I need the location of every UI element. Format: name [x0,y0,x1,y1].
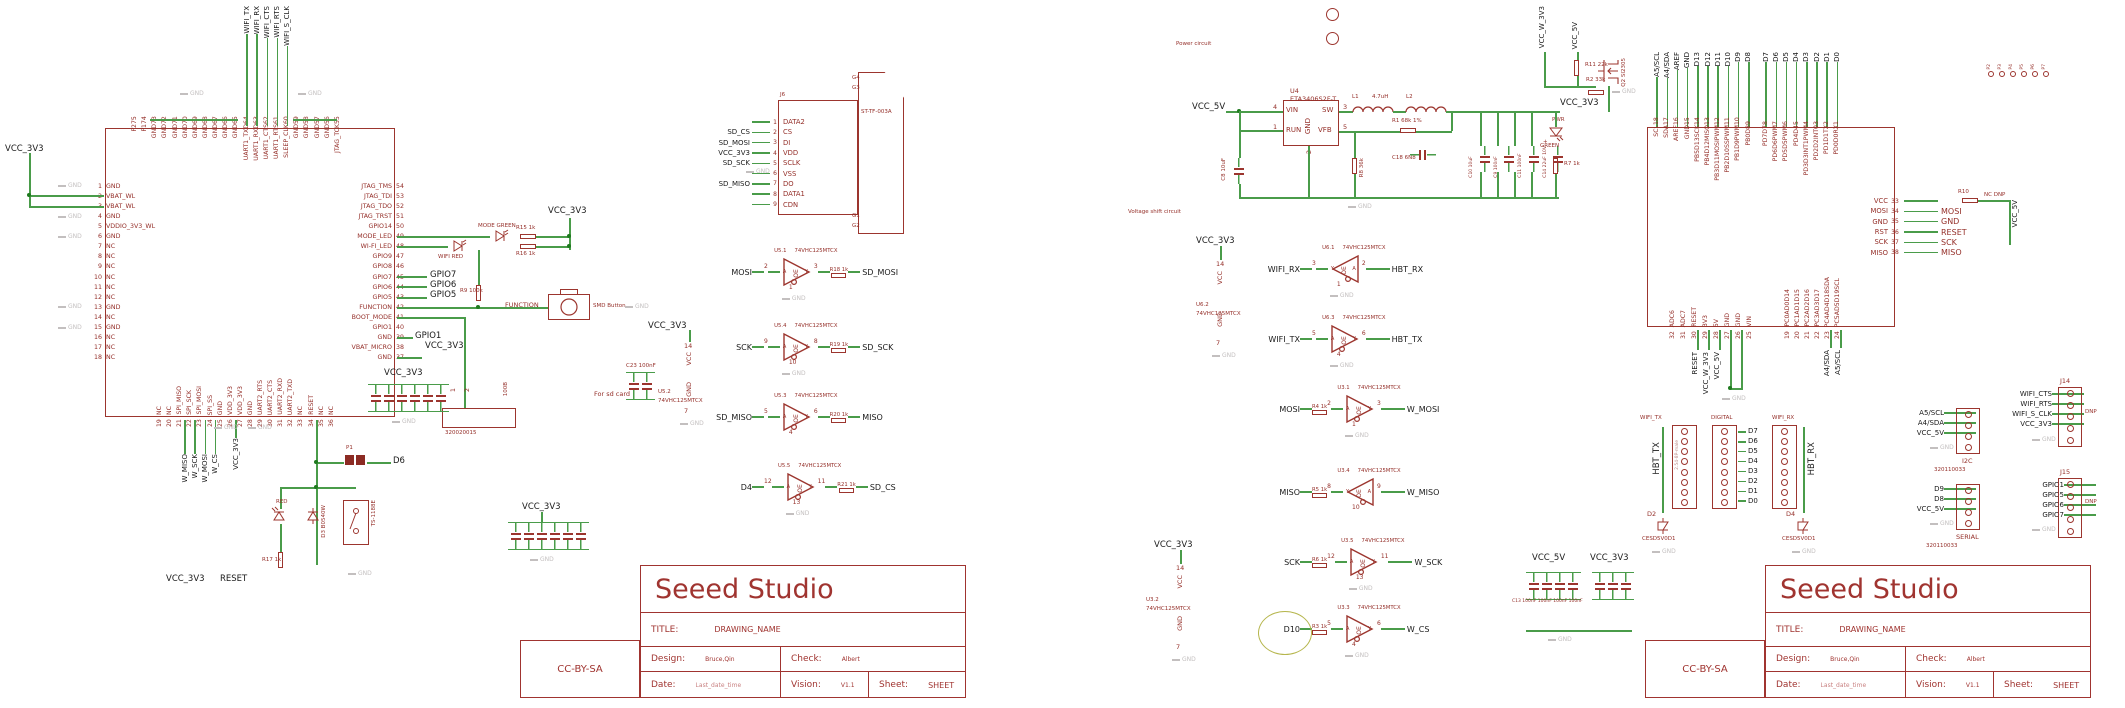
pin-number: 9 [1377,483,1381,490]
pin-run: RUN [1286,127,1301,134]
net-label: SD_MISO [698,180,750,188]
date-value: Last_date_time [1821,682,1867,689]
mount-hole: P5 [2018,64,2029,77]
sd-shield-top: G4G3 [852,76,860,96]
net-label-column: W_CS [210,420,220,500]
ic-pin: 13GND [86,302,155,312]
gnd-symbol: GND [782,370,806,377]
diode-d3-label: D3 B0540W [322,505,328,538]
oe-label: OE [796,484,803,493]
wire [1741,330,1743,390]
net-label: SCK [1938,238,1957,247]
pin-number: 5 [1327,620,1331,627]
ic-pin: 38VBAT_MICRO [300,343,412,353]
gnd-symbol: GND [1652,548,1676,555]
r10-note: NC DNP [1984,193,2005,199]
a-label: A [783,414,786,420]
jumper-pad [356,455,365,465]
ic-pin: GND28 [246,355,256,427]
wire [1738,500,1746,502]
net-label: VCC_3V3 [698,149,750,157]
bank-cap-values: C13 100nF 100nF 100nF 100nF [1512,600,1583,605]
net-label-out: SD_CS [870,483,896,492]
pin-number: 5 [764,408,768,415]
gnd-symbol: GND [214,424,238,431]
ic-pin: 51JTAG_TRST [300,211,412,221]
net-label: D13 [1694,52,1701,66]
resistor-body [520,244,536,249]
wire [1378,338,1390,340]
net-label-column: WIFI_TX [242,6,252,126]
net-label-out: HBT_RX [1392,265,1423,274]
gnd-symbol: GND [625,303,649,310]
hole-label: P4 [2010,64,2015,70]
wire [752,271,764,273]
socket-pin-row: RST36RESET [1826,227,1967,237]
net-label-in: MOSI [1246,405,1300,414]
wire [1662,427,1664,513]
header-wifi-rx [1772,425,1797,509]
net-label: D1 [1746,488,1758,495]
net-row: GPIO6 [2008,500,2096,510]
wire [1220,246,1222,260]
buffer-caption: U3.374VHC125MTCX [1309,605,1429,611]
buffer-gate: SD_MISO 5 OE A Y 4 GND U5.374VHC125MTCX … [698,400,883,434]
wire [818,416,830,418]
net-label-reset: RESET [220,575,247,584]
wire [1738,461,1746,463]
smd-button-label: SMD Button [593,304,626,310]
pin-number: 6 [814,408,818,415]
buffer-caption: U3.474VHC125MTCX [1309,468,1429,474]
mount-hole [1326,32,1339,45]
capacitor [511,523,521,549]
check-value: Albert [842,656,860,663]
ic-pin: 41BOOT_MODE [300,312,412,322]
pin-name-gnd: GND [686,382,693,397]
ic-pin: 39GND [300,333,412,343]
y-label: Y [805,414,808,420]
net-label-hbt-rx: HBT_RX [1808,442,1817,475]
a-label: A [783,269,786,275]
serial-label: SERIAL [1956,534,1979,541]
buffer-gate: D4 12 OE A Y 13 GND U5.574VHC125MTCX 11 … [698,470,896,504]
wire [1381,408,1393,410]
a-label: A [783,344,786,350]
net-label-in: D10 [1246,625,1300,634]
wire [1697,330,1699,350]
wire [1300,561,1312,563]
pin-number: 14 [1216,261,1224,268]
pin-number: 9 [770,201,780,208]
oe-label: OE [1360,559,1367,568]
diode-d4-ref: D4 [1786,511,1795,518]
net-label-reset: RESET [1692,352,1699,374]
net-label-vcc3v3: VCC_3V3 [425,342,464,351]
ic-pin: 8PD7D7 [1761,113,1771,176]
ic-pin: 9NC [86,262,155,272]
ic-pin: 3PD2D2INT0 [1812,113,1822,176]
wire [1978,200,2010,202]
wire [1738,491,1746,493]
net-label-vcc3v3: VCC_3V3 [384,369,423,378]
wire [1331,408,1343,410]
led-icon [450,240,466,252]
pin-number: 1 [770,119,780,126]
wire [1239,111,1241,158]
pin-number: 12 [764,478,772,485]
sd-part-label: ST-TF-003A [861,110,892,116]
pin-gnd: GND [1305,118,1312,134]
wire [848,416,860,418]
net-row: D1 [1738,486,1758,496]
design-label: Design: [651,654,685,664]
gnd-symbol: GND [1212,352,1236,359]
mount-hole: P7 [2040,64,2051,77]
a-label: A [1352,266,1355,272]
pin-name-vcc: VCC [1177,575,1184,589]
connector-part: 320020015 [445,431,477,437]
net-label: W_MOSI [202,454,209,482]
dnp-flag: DNP [2085,410,2097,416]
company-row: Seeed Studio [1766,566,2090,613]
pin-number: 1 [450,388,457,392]
capacitor [1480,146,1490,172]
wire [256,34,258,126]
ic-pin: SPI_MOSI23 [195,355,205,427]
socket-pin-row: GND35GND [1826,217,1967,227]
buffer-triangle: OE A Y 4 GND U6.374VHC125MTCX [1328,322,1362,356]
title-block: Seeed Studio TITLE:DRAWING_NAME Design:B… [1765,565,2091,698]
socket-bottom-pins-a: ADC632ADC731RESET303V3295V28GND27GND26VI… [1668,252,1756,339]
gnd-symbol: GND [1548,636,1572,643]
resistor-body [520,234,536,239]
net-label-column: WIFI_CTS [262,6,272,126]
gnd-symbol: GND [1612,88,1636,95]
connector-320020015 [442,408,516,428]
net-label: D2 [1746,478,1758,485]
net-label-in: MISO [1246,488,1300,497]
wire [1904,252,1938,254]
j14-connector [2058,387,2082,447]
pin-number: 5 [1312,330,1316,337]
wire [1738,471,1746,473]
wire [1830,330,1832,348]
wire [1300,491,1312,493]
net-label: D2 [1814,52,1821,62]
sd-pin-row: 9CDN [698,199,805,209]
ic-part-label: 74VHC125MTCX [658,399,703,405]
net-label-out: W_CS [1407,625,1430,634]
sheet-label: Sheet: [2004,680,2033,690]
gnd-symbol: GND [1172,656,1196,663]
oe-label: OE [1356,489,1363,498]
wire [1738,481,1746,483]
wire [287,46,289,126]
buffer-triangle: OE A Y 10 GND U5.474VHC125MTCX [780,330,814,364]
net-label-out: SD_MOSI [862,268,898,277]
dnp-flag: DNP [2085,500,2097,506]
pin-name: SCK [1826,238,1888,246]
wire [825,486,837,488]
y-label: Y [1353,336,1356,342]
ic-pin: VDD_3V327 [236,355,246,427]
series-resistor: R19 1k [830,342,849,353]
junction [314,485,318,489]
socket-pin-row: SCK37SCK [1826,237,1967,247]
capacitor-bank [1592,572,1634,600]
cap-c11-label: C11 100nF [1519,146,1524,178]
net-label: D9 [1888,485,1944,493]
wire [1331,628,1343,630]
net-label-vcc-w-3v3: VCC_W_3V3 [1703,352,1710,394]
oe-pin-number: 1 [1337,281,1341,288]
wire [772,486,784,488]
wire [397,246,448,248]
capacitor [563,523,573,549]
digital-net-list: D7D6D5D4D3D2D1D0 [1738,427,1758,506]
ic-pin: VDD_3V326 [226,355,236,427]
pin-number: 8 [814,338,818,345]
diode-part-label: CESD5V0D1 [1782,537,1816,543]
mount-hole: P6 [2029,64,2040,77]
ic-pin: 5VDDIO_3V3_WL [86,221,155,231]
ic-pin: 10NC [86,272,155,282]
net-label-column: W_SCK [190,420,200,500]
net-label: GPIO1 [2008,481,2064,489]
pin-number: 5 [1343,124,1347,131]
date-row: Date:Last_date_time Vision:V1.1 Sheet:SH… [641,672,965,698]
ic-part-label: 74VHC125MTCX [1146,607,1191,613]
net-label: WIFI_S_CLK [284,6,291,46]
hole-label: P3 [1999,64,2004,70]
capacitor [642,373,652,399]
ic-pin: PC2AD2D1621 [1803,252,1813,339]
cap-c14-label: C14 22uF 10V [1544,146,1549,178]
net-label: WIFI_RTS [274,6,281,38]
net-label: WIFI_RTS [1996,400,2052,408]
socket-top-pins-b: 8PD7D77PD6D6PWM6PD5D5PWM5PD4D44PD3D3INT1… [1761,113,1843,176]
net-label: GND [1938,217,1959,226]
wire [1904,211,1938,213]
ic-bottom-net-list: W_MISOW_SCKW_MOSIW_CS [180,420,220,500]
date-row: Date:Last_date_time Vision:V1.1 Sheet:SH… [1766,672,2090,698]
ic-pin: RESET30 [1690,252,1701,339]
buffer-triangle: OE A Y 10 GND U3.474VHC125MTCX [1343,475,1377,509]
wire [1730,330,1732,390]
wire [1366,338,1378,340]
net-label: W_CS [212,454,219,474]
inductor-l2: L2 [1406,95,1413,101]
series-resistor: R3 1k [1312,624,1327,635]
pin-number: 2 [770,129,780,136]
net-label: D5 [1783,52,1790,62]
sd-shield-bottom: G1G2 [852,214,860,234]
cap-c10-label: C10 10uF [1470,146,1475,178]
net-label: D7 [1763,52,1770,62]
license-text: CC-BY-SA [557,664,602,675]
wire [280,524,282,552]
connector-value: 100B [504,382,510,396]
wire [29,195,104,197]
wire [184,420,186,454]
wire [1339,111,1353,113]
wire [1316,338,1328,340]
pin-number: 14 [1176,565,1184,572]
wire [1514,172,1516,198]
capacitor [576,523,586,549]
ic-pin: 12NC [86,292,155,302]
ic-pin: 11PB2D10SSPWM [1723,113,1733,181]
sd-pin-row: SD_MISO7DO [698,179,805,189]
socket-holes: P2P3P4P5P6P7 [1985,64,2051,77]
net-label-vcc5v: VCC_5V [2012,200,2019,227]
wire [1803,427,1805,513]
wire [1738,451,1746,453]
gnd-symbol: GND [248,424,272,431]
pin-name: CDN [780,201,798,209]
pin-name: VCC [1826,197,1888,205]
oe-label: OE [1356,406,1363,415]
buffer-triangle: OE A Y 1 GND U5.174VHC125MTCX [780,255,814,289]
inductor-l1-value: 4.7uH [1372,95,1388,101]
ic-pin: 8NC [86,252,155,262]
capacitor-bank [626,372,655,400]
hole-label: P5 [2021,64,2026,70]
net-label-vcc3v3: VCC_3V3 [1154,541,1193,550]
wire [752,183,770,185]
section-label-power: Power circuit [1176,42,1211,48]
zener-diode-icon [1656,518,1670,534]
gnd-symbol: GND [786,510,810,517]
net-label: D4 [1746,458,1758,465]
inductor-icon [1406,104,1446,114]
pin-name: GND [1826,218,1888,226]
vision-label: Vision: [791,680,821,690]
gnd-symbol: GND [1348,203,1372,210]
switch-part-label: TS-1188E [372,500,378,526]
design-label: Design: [1776,654,1810,664]
q2-label: Q2 SI2305 [1622,58,1628,87]
pin-number: 14 [684,343,692,350]
pin-name: VSS [780,170,796,178]
ic-pin: NC19 [155,355,165,427]
buffer-caption: U6.174VHC125MTCX [1294,245,1414,251]
net-label: SD_CS [698,128,750,136]
hole-label: P6 [2032,64,2037,70]
ic-pin: 11NC [86,282,155,292]
resistor-r1: R1 68k 1% [1392,119,1422,125]
pin-number: 2 [464,388,471,392]
vision-label: Vision: [1916,680,1946,690]
capacitor-bank [1526,572,1581,600]
check-value: Albert [1967,656,1985,663]
switch-icon [345,503,367,541]
ic-pin: 53JTAG_TDI [300,191,412,201]
gnd-symbol: GND [58,213,82,220]
ic-pin: 1PD0D0RX [1832,113,1842,176]
wire [267,38,269,126]
capacitor [410,385,420,411]
wire [1555,111,1557,127]
led-icon [272,508,286,524]
wire [397,357,422,359]
net-row: D4 [1738,457,1758,467]
net-label: D11 [1715,52,1722,66]
net-label: W_MISO [182,454,189,482]
ic-pin: 6GND [86,232,155,242]
drawing-name: DRAWING_NAME [1839,625,1905,634]
date-label: Date: [651,680,676,690]
socket-pin-row: MISO38MISO [1826,247,1967,257]
gnd-symbol: GND [58,324,82,331]
net-label-column: W_MISO [180,420,190,500]
net-label: WIFI_S_CLK [1996,410,2052,418]
button-icon [560,298,578,316]
note-for-sd-card: For sd card [594,391,630,398]
buffer-gate: MISO R5 1k 8 OE A Y 10 GND U3.474VHC125M… [1246,475,1439,509]
gnd-symbol: GND [1330,292,1354,299]
wire [1354,131,1356,158]
ic-pin: PC4AD4D18SDA23 [1823,252,1833,339]
gnd-symbol: GND [782,295,806,302]
wire [768,416,780,418]
resistor-r7: R7 1k [1564,162,1580,168]
net-label-out: W_MISO [1407,488,1440,497]
resistor-body [1400,128,1416,133]
buffer-gate: WIFI_RX 3 OE A Y 1 GND U6.174VHC125MTCX … [1246,252,1423,286]
wire [1335,561,1347,563]
net-label: D7 [1746,428,1758,435]
gnd-symbol: GND [2032,526,2056,533]
wire [1719,330,1721,350]
pin-name-vcc: VCC [686,352,693,366]
sheet-value: SHEET [2053,681,2079,690]
net-label: D4 [1793,52,1800,62]
capacitor [524,523,534,549]
ic-pin: 49MODE_LED [300,232,412,242]
capacitor [629,373,639,399]
wire [1239,184,1241,198]
net-label-vcc-w-3v3: VCC_W_3V3 [1539,6,1546,48]
gnd-symbol: GND [2032,436,2056,443]
zener-diode-icon [1796,518,1810,534]
ic-part-label: 74VHC125MTCX [1196,312,1241,318]
pin-number: 4 [1273,104,1277,111]
oe-label: OE [1341,336,1348,345]
pin-number: 35 [1888,218,1902,225]
net-row: D5 [1738,447,1758,457]
net-label-out: MISO [862,413,883,422]
net-label-vcc3v3: VCC_3V3 [5,145,44,154]
buffer-caption: U3.574VHC125MTCX [1313,538,1433,544]
wire [1416,131,1452,133]
series-resistor: R5 1k [1312,487,1327,498]
pin-vfb: VFB [1318,127,1332,134]
resistor-body [278,552,283,568]
y-label: Y [1368,406,1371,412]
net-label-vcc5v: VCC_5V [1192,103,1225,112]
net-label-vcc5v: VCC_5V [1714,352,1721,379]
buffer-triangle: OE A Y 13 GND U3.574VHC125MTCX [1347,545,1381,579]
header-digital-label: DIGITAL [1711,416,1733,422]
ic-pin: UART2_TXD32 [286,355,296,427]
net-label: D12 [1705,52,1712,66]
schematic-canvas: 1GND2VBAT_WL3VBAT_WL4GND5VDDIO_3V3_WL6GN… [0,0,2125,708]
series-resistor: R18 1k [830,267,849,278]
license-box: CC-BY-SA [520,640,640,698]
ic-pin: 2PD1D1TX [1822,113,1832,176]
